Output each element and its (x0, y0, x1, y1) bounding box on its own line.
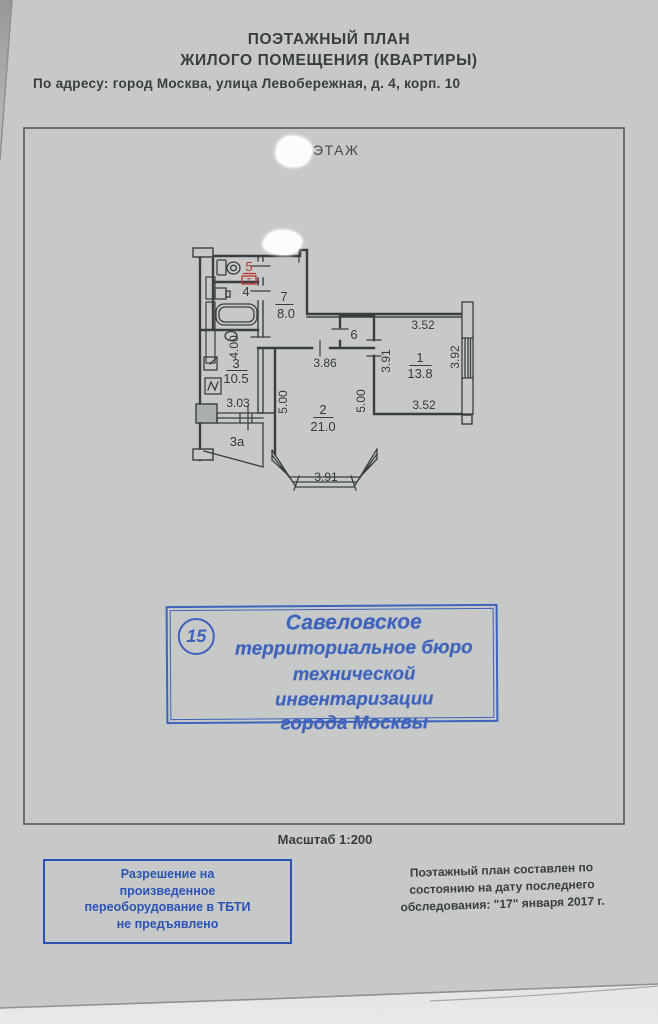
stamp-line-4: города Москвы (216, 710, 492, 737)
dim-3-92: 3.92 (448, 345, 462, 369)
scale-label: Масштаб 1:200 (0, 832, 650, 847)
survey-note: Поэтажный план составлен по состоянию на… (382, 858, 621, 916)
dim-3-91-bay: 3.91 (314, 470, 338, 484)
room-4-number: 4 (242, 284, 249, 299)
permission-line-2: произведенное (45, 883, 290, 900)
document-title-line-1: ПОЭТАЖНЫЙ ПЛАН (0, 31, 658, 49)
dim-3-91-room1: 3.91 (379, 349, 393, 373)
whiteout-floor-number (276, 136, 312, 167)
dim-3-86: 3.86 (313, 356, 337, 370)
permission-line-4: не предъявлено (45, 916, 290, 933)
dim-3-03: 3.03 (226, 396, 250, 410)
room-7-area: 8.0 (277, 306, 295, 321)
room-5-number: 5 (245, 259, 252, 274)
room-1-number: 1 (416, 350, 423, 365)
bti-stamp-number: 15 (178, 618, 215, 655)
dim-3-52-bottom: 3.52 (412, 398, 436, 412)
dim-3-52-top: 3.52 (411, 318, 435, 332)
stamp-line-1: Савеловское (216, 609, 492, 637)
bti-stamp: 15 Савеловское территориальное бюро техн… (166, 604, 499, 724)
permission-line-1: Разрешение на (45, 866, 290, 883)
room-2-area: 21.0 (310, 419, 335, 434)
stamp-line-2: территориальное бюро (216, 635, 492, 662)
whiteout-plan-entry (263, 230, 302, 255)
stamp-line-3: технической инвентаризации (216, 660, 492, 712)
room-3-area: 10.5 (223, 371, 248, 386)
floor-label: ЭТАЖ (313, 142, 359, 158)
bti-stamp-text: Савеловское территориальное бюро техниче… (216, 609, 493, 737)
dim-5-00-left: 5.00 (276, 390, 290, 414)
permission-line-3: переоборудование в ТБТИ (45, 899, 290, 916)
balcony-3a-label: 3а (230, 434, 245, 449)
room-2-number: 2 (319, 402, 326, 417)
document-title-line-2: ЖИЛОГО ПОМЕЩЕНИЯ (КВАРТИРЫ) (0, 52, 658, 70)
room-1-area: 13.8 (407, 366, 432, 381)
room-6-number: 6 (350, 327, 357, 342)
scanned-floor-plan-page: 5 Т 3 10.5 4 7 8.0 6 2 21.0 1 13.8 3а 4.… (0, 0, 658, 1024)
dim-5-00-right: 5.00 (354, 389, 368, 413)
room-7-number: 7 (280, 289, 287, 304)
dim-4-00: 4.00 (227, 335, 241, 359)
address-line: По адресу: город Москва, улица Левобереж… (33, 76, 460, 91)
room-1-window (462, 302, 473, 414)
permission-box: Разрешение на произведенное переоборудов… (43, 859, 292, 944)
